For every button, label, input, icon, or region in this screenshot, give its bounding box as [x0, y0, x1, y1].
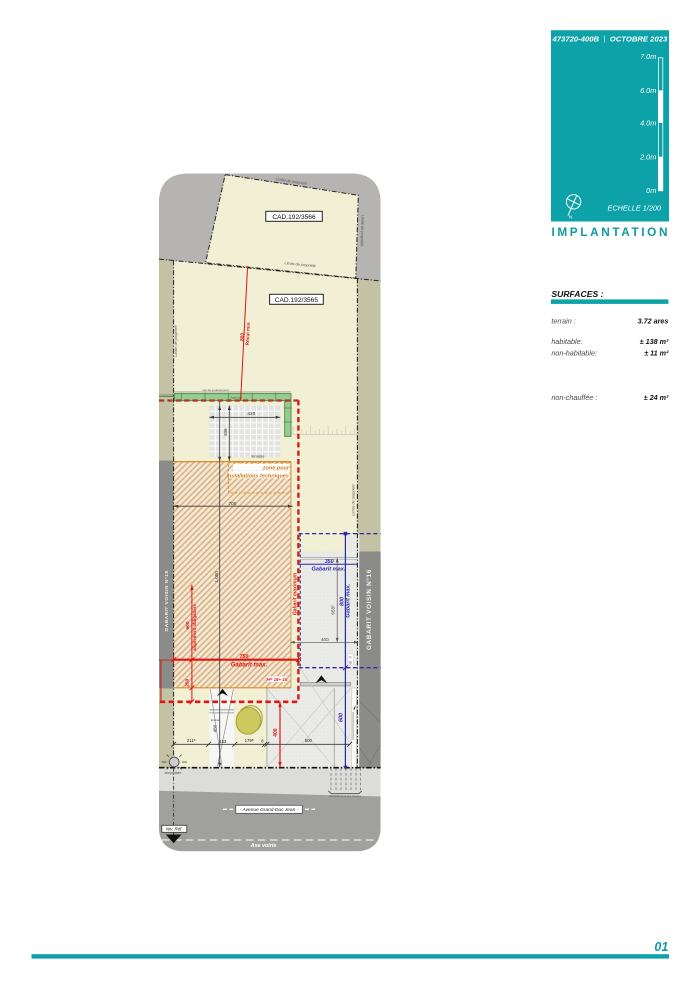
svg-text:terrasse: terrasse [252, 455, 265, 459]
svg-text:OCTOBRE 2023: OCTOBRE 2023 [610, 34, 668, 43]
svg-text:400: 400 [321, 637, 329, 642]
svg-text:ECHELLE 1/200: ECHELLE 1/200 [607, 203, 661, 212]
svg-text:F: F [350, 655, 352, 659]
svg-text:SURFACES :: SURFACES : [551, 289, 603, 299]
svg-text:raccordements aux réseaux: raccordements aux réseaux [329, 794, 362, 798]
svg-text:lampadaire: lampadaire [165, 771, 182, 775]
svg-text:Niv. Réf.: Niv. Réf. [166, 827, 183, 832]
svg-text:alignement obligatoire: alignement obligatoire [192, 604, 197, 651]
svg-text:± 24 m²: ± 24 m² [644, 393, 669, 402]
svg-text:mur de soutènement: mur de soutènement [202, 388, 229, 392]
svg-text:153: 153 [219, 739, 227, 744]
svg-text:terrain :: terrain : [551, 317, 575, 326]
svg-text:installations techniques: installations techniques [226, 474, 289, 480]
svg-text:2.0m: 2.0m [639, 153, 656, 162]
svg-text:- Avenue Grand-Duc Jean -: - Avenue Grand-Duc Jean - [240, 807, 299, 813]
svg-text:Gabarit max.: Gabarit max. [312, 566, 346, 572]
svg-text:400: 400 [273, 728, 279, 737]
svg-text:336: 336 [223, 428, 228, 436]
svg-text:Gabarit max.: Gabarit max. [346, 583, 352, 617]
svg-text:700: 700 [228, 501, 236, 506]
svg-text:480: 480 [212, 724, 217, 732]
svg-text:7.0m: 7.0m [640, 52, 656, 61]
svg-text:Entrée: Entrée [211, 718, 220, 722]
svg-text:H= 18+ 15: H= 18+ 15 [267, 677, 288, 682]
svg-text:zone pour: zone pour [262, 466, 290, 472]
svg-text:01: 01 [654, 940, 668, 954]
svg-text:habitable:: habitable: [551, 337, 582, 346]
svg-text:800: 800 [239, 332, 245, 341]
svg-text:non-chauffée :: non-chauffée : [551, 393, 597, 402]
svg-text:GABARIT VOISIN N°16: GABARIT VOISIN N°16 [365, 569, 373, 650]
svg-text:350: 350 [325, 559, 334, 565]
svg-text:600: 600 [339, 713, 345, 722]
svg-text:± 11 m²: ± 11 m² [644, 349, 669, 358]
svg-text:6.0m: 6.0m [640, 86, 656, 95]
svg-text:CAD.192/3566: CAD.192/3566 [272, 214, 316, 221]
svg-text:CAD.192/3565: CAD.192/3565 [275, 297, 319, 304]
svg-text:Récul min: Récul min [245, 322, 252, 345]
svg-text:250: 250 [185, 678, 191, 686]
svg-text:IMPLANTATION: IMPLANTATION [552, 225, 670, 239]
svg-text:GABARIT VOISIN N°18: GABARIT VOISIN N°18 [164, 571, 170, 632]
svg-text:4.0m: 4.0m [640, 119, 656, 128]
svg-text:± 138 m²: ± 138 m² [640, 337, 669, 346]
svg-text:Gabarit maximum: Gabarit maximum [293, 572, 299, 615]
svg-text:500: 500 [305, 738, 313, 743]
svg-text:0m: 0m [646, 186, 656, 195]
svg-text:non-habitable:: non-habitable: [551, 349, 597, 358]
svg-text:420: 420 [247, 411, 255, 416]
svg-text:473720-400B: 473720-400B [552, 34, 600, 43]
svg-text:N: N [569, 215, 572, 220]
svg-text:600: 600 [185, 621, 191, 629]
svg-text:750: 750 [240, 654, 249, 660]
svg-text:Limite de propriété: Limite de propriété [174, 325, 178, 356]
svg-text:3.72 ares: 3.72 ares [638, 317, 669, 326]
svg-text:Gabarit max.: Gabarit max. [231, 663, 268, 669]
svg-text:1.050: 1.050 [214, 571, 219, 583]
svg-text:tp: tp [349, 660, 352, 664]
svg-text:|: | [604, 34, 606, 43]
svg-text:Limite de propriété: Limite de propriété [351, 484, 355, 515]
svg-text:Axe voirie: Axe voirie [250, 843, 277, 849]
